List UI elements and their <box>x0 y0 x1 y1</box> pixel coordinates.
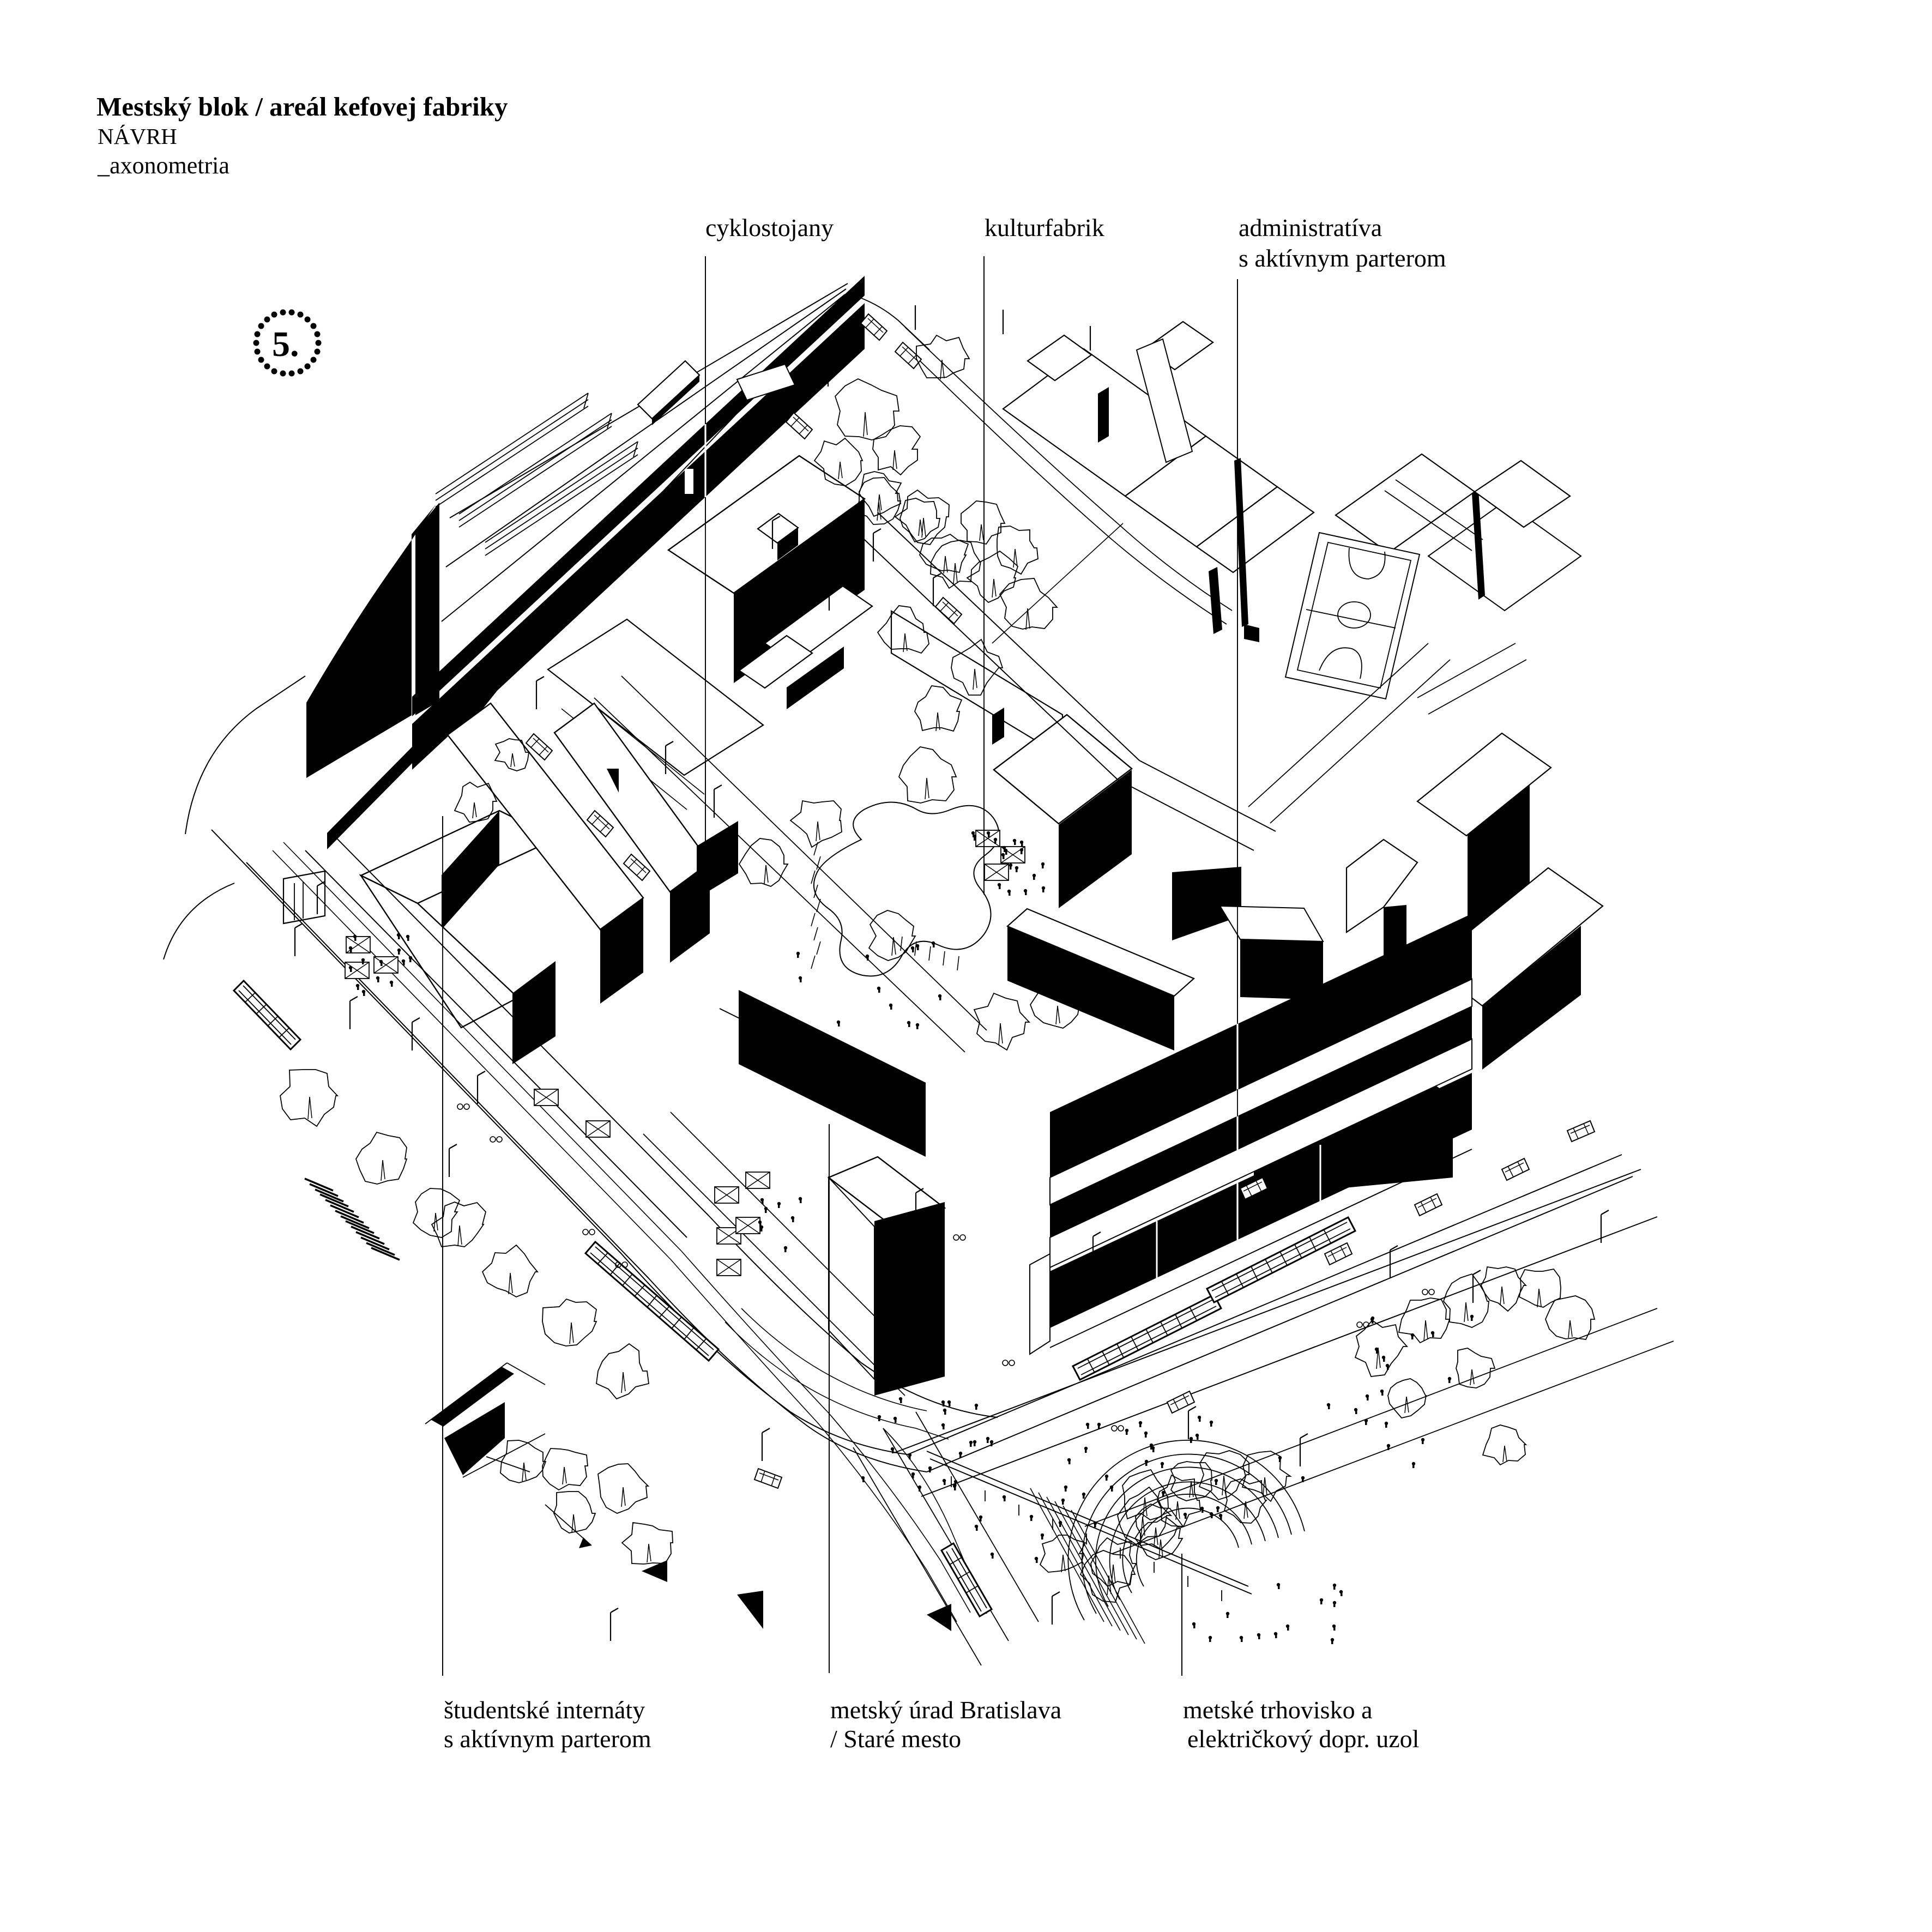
svg-text:cyklostojany: cyklostojany <box>705 214 834 241</box>
svg-text:5.: 5. <box>272 324 299 364</box>
svg-text:metské trhovisko a: metské trhovisko a <box>1183 1696 1373 1724</box>
svg-text:Mestský blok / areál kefovej f: Mestský blok / areál kefovej fabriky <box>96 92 508 122</box>
svg-text:kulturfabrik: kulturfabrik <box>985 214 1104 241</box>
svg-text:s aktívnym parterom: s aktívnym parterom <box>444 1725 651 1753</box>
svg-text:metský úrad Bratislava: metský úrad Bratislava <box>830 1696 1061 1724</box>
svg-text:NÁVRH: NÁVRH <box>98 124 177 149</box>
svg-text:/ Staré mesto: / Staré mesto <box>830 1725 961 1753</box>
svg-text:administratíva: administratíva <box>1239 214 1382 241</box>
svg-text:električkový dopr. uzol: električkový dopr. uzol <box>1187 1725 1419 1753</box>
svg-text:_axonometria: _axonometria <box>97 152 230 179</box>
svg-text:študentské internáty: študentské internáty <box>444 1696 645 1724</box>
svg-text:s aktívnym parterom: s aktívnym parterom <box>1239 244 1446 272</box>
